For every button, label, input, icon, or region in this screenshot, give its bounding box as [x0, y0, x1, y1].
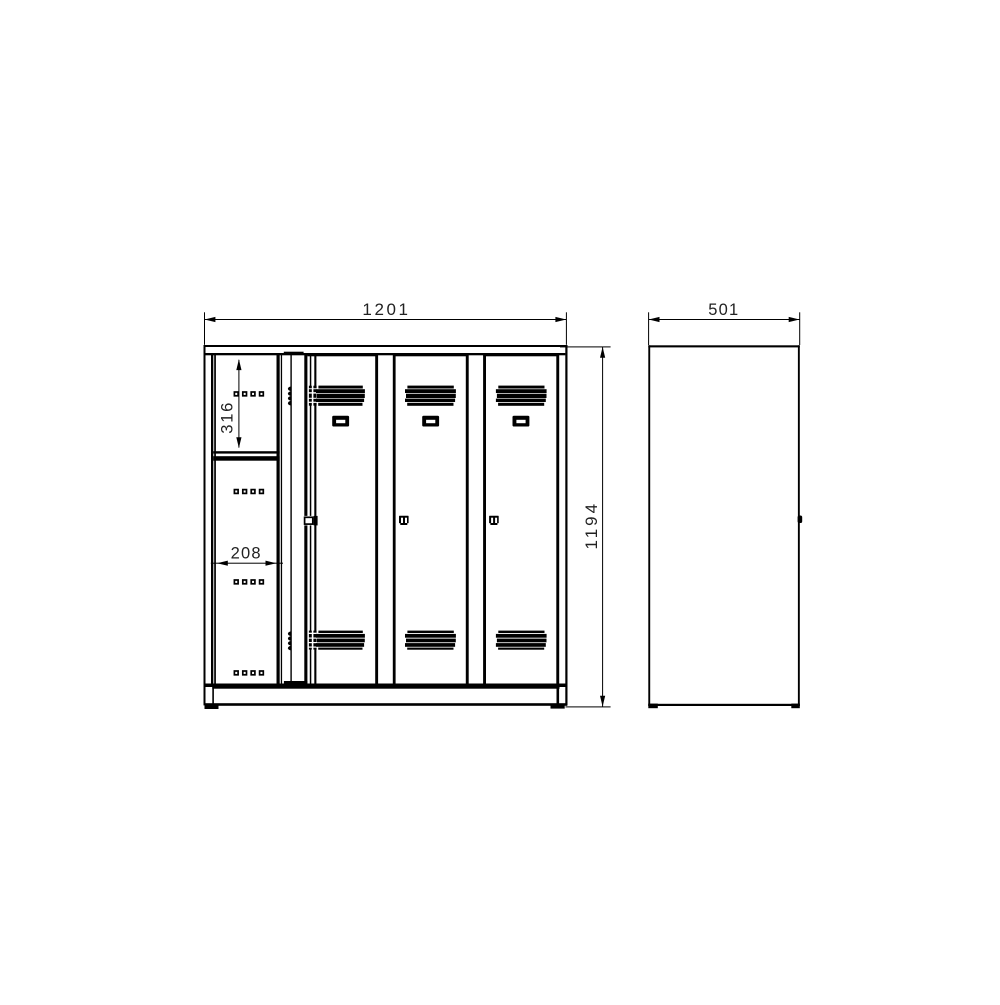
- svg-text:1201: 1201: [362, 300, 410, 319]
- svg-text:501: 501: [708, 301, 739, 319]
- svg-text:208: 208: [231, 545, 262, 563]
- svg-text:316: 316: [219, 401, 237, 434]
- svg-text:1194: 1194: [582, 501, 601, 550]
